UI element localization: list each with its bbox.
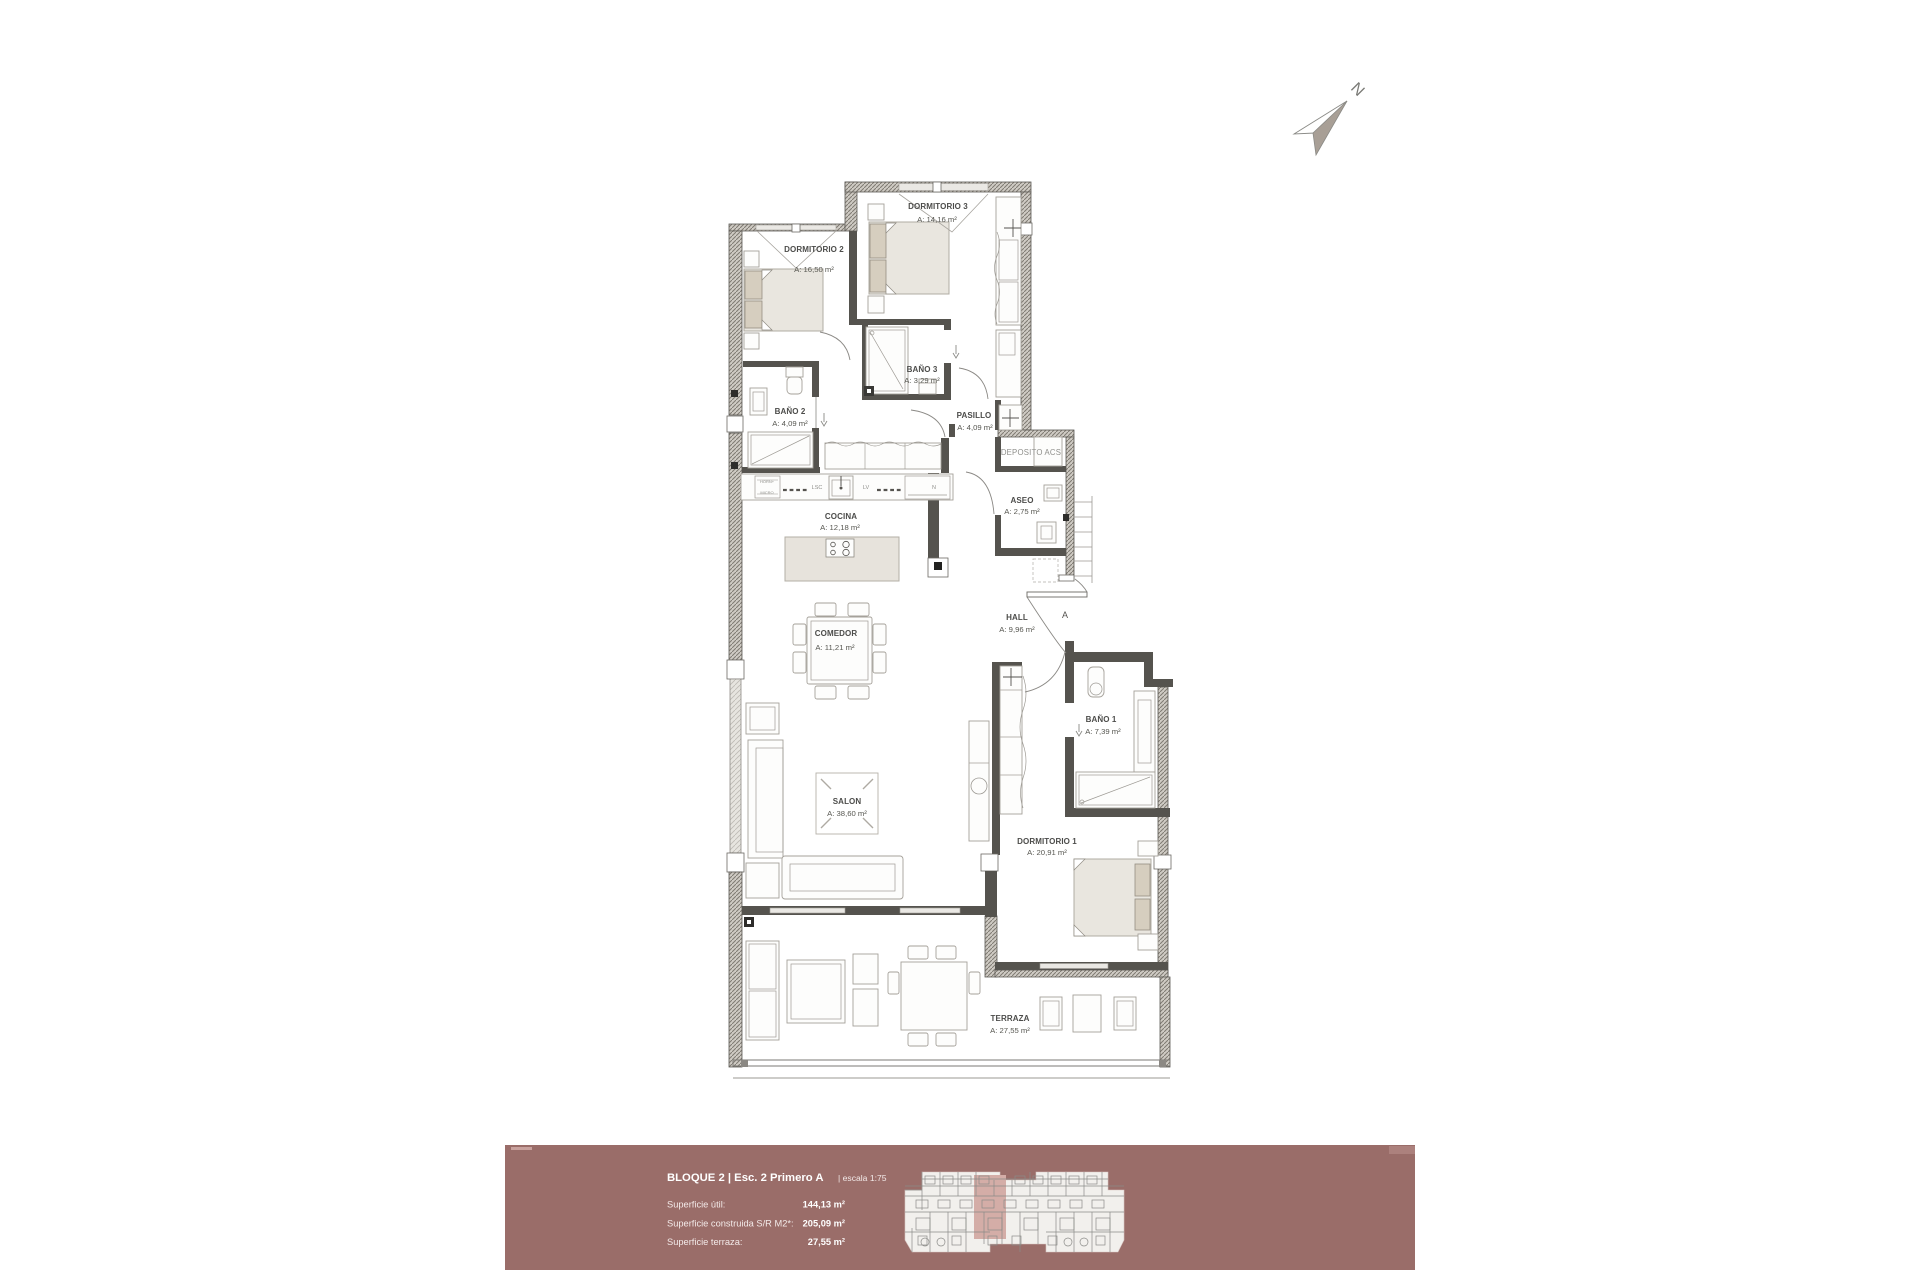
svg-text:A: 27,55 m²: A: 27,55 m² xyxy=(990,1026,1030,1035)
svg-text:PASILLO: PASILLO xyxy=(957,411,992,420)
svg-text:Superficie terraza:: Superficie terraza: xyxy=(667,1237,742,1247)
svg-text:A: 7,39 m²: A: 7,39 m² xyxy=(1085,727,1121,736)
svg-text:205,09 m²: 205,09 m² xyxy=(803,1219,845,1229)
svg-text:LSC: LSC xyxy=(812,485,823,491)
svg-text:TERRAZA: TERRAZA xyxy=(991,1014,1030,1023)
svg-text:A: 12,18 m²: A: 12,18 m² xyxy=(820,523,860,532)
svg-text:A: 2,75 m²: A: 2,75 m² xyxy=(1004,507,1040,516)
svg-text:BAÑO 1: BAÑO 1 xyxy=(1086,715,1117,724)
svg-text:A: 16,50 m²: A: 16,50 m² xyxy=(794,265,834,274)
svg-text:Superficie construida S/R M2*:: Superficie construida S/R M2*: xyxy=(667,1219,794,1229)
svg-text:ASEO: ASEO xyxy=(1010,496,1033,505)
svg-text:BAÑO 2: BAÑO 2 xyxy=(775,407,806,416)
svg-text:A: 9,96 m²: A: 9,96 m² xyxy=(999,625,1035,634)
svg-text:HORN+: HORN+ xyxy=(760,479,775,484)
svg-text:DEPOSITO ACS: DEPOSITO ACS xyxy=(1001,448,1061,457)
svg-text:A: 4,09 m²: A: 4,09 m² xyxy=(957,423,993,432)
svg-text:SALON: SALON xyxy=(833,797,862,806)
svg-text:BLOQUE 2 | Esc. 2 Primero A: BLOQUE 2 | Esc. 2 Primero A xyxy=(667,1172,824,1184)
svg-text:A: 4,09 m²: A: 4,09 m² xyxy=(772,419,808,428)
svg-text:DORMITORIO 1: DORMITORIO 1 xyxy=(1017,837,1077,846)
svg-text:DORMITORIO 3: DORMITORIO 3 xyxy=(908,202,968,211)
svg-text:COCINA: COCINA xyxy=(825,512,857,521)
svg-text:BAÑO 3: BAÑO 3 xyxy=(907,365,938,374)
svg-text:A: 14,16 m²: A: 14,16 m² xyxy=(917,215,957,224)
svg-text:LV: LV xyxy=(863,485,870,491)
svg-text:DORMITORIO 2: DORMITORIO 2 xyxy=(784,245,844,254)
svg-text:Superficie útil:: Superficie útil: xyxy=(667,1200,725,1210)
svg-text:27,55 m²: 27,55 m² xyxy=(808,1237,845,1247)
svg-text:N: N xyxy=(932,485,936,491)
svg-text:A: 11,21 m²: A: 11,21 m² xyxy=(815,643,855,652)
svg-text:| escala 1:75: | escala 1:75 xyxy=(838,1173,887,1183)
svg-text:A: 38,60 m²: A: 38,60 m² xyxy=(827,809,867,818)
svg-text:A: A xyxy=(1062,610,1068,620)
svg-text:HALL: HALL xyxy=(1006,613,1028,622)
svg-text:A: 20,91 m²: A: 20,91 m² xyxy=(1027,848,1067,857)
svg-text:A: 3,29 m²: A: 3,29 m² xyxy=(904,376,940,385)
svg-text:COMEDOR: COMEDOR xyxy=(815,629,858,638)
svg-text:MICRO: MICRO xyxy=(760,490,773,495)
svg-text:144,13 m²: 144,13 m² xyxy=(803,1200,845,1210)
